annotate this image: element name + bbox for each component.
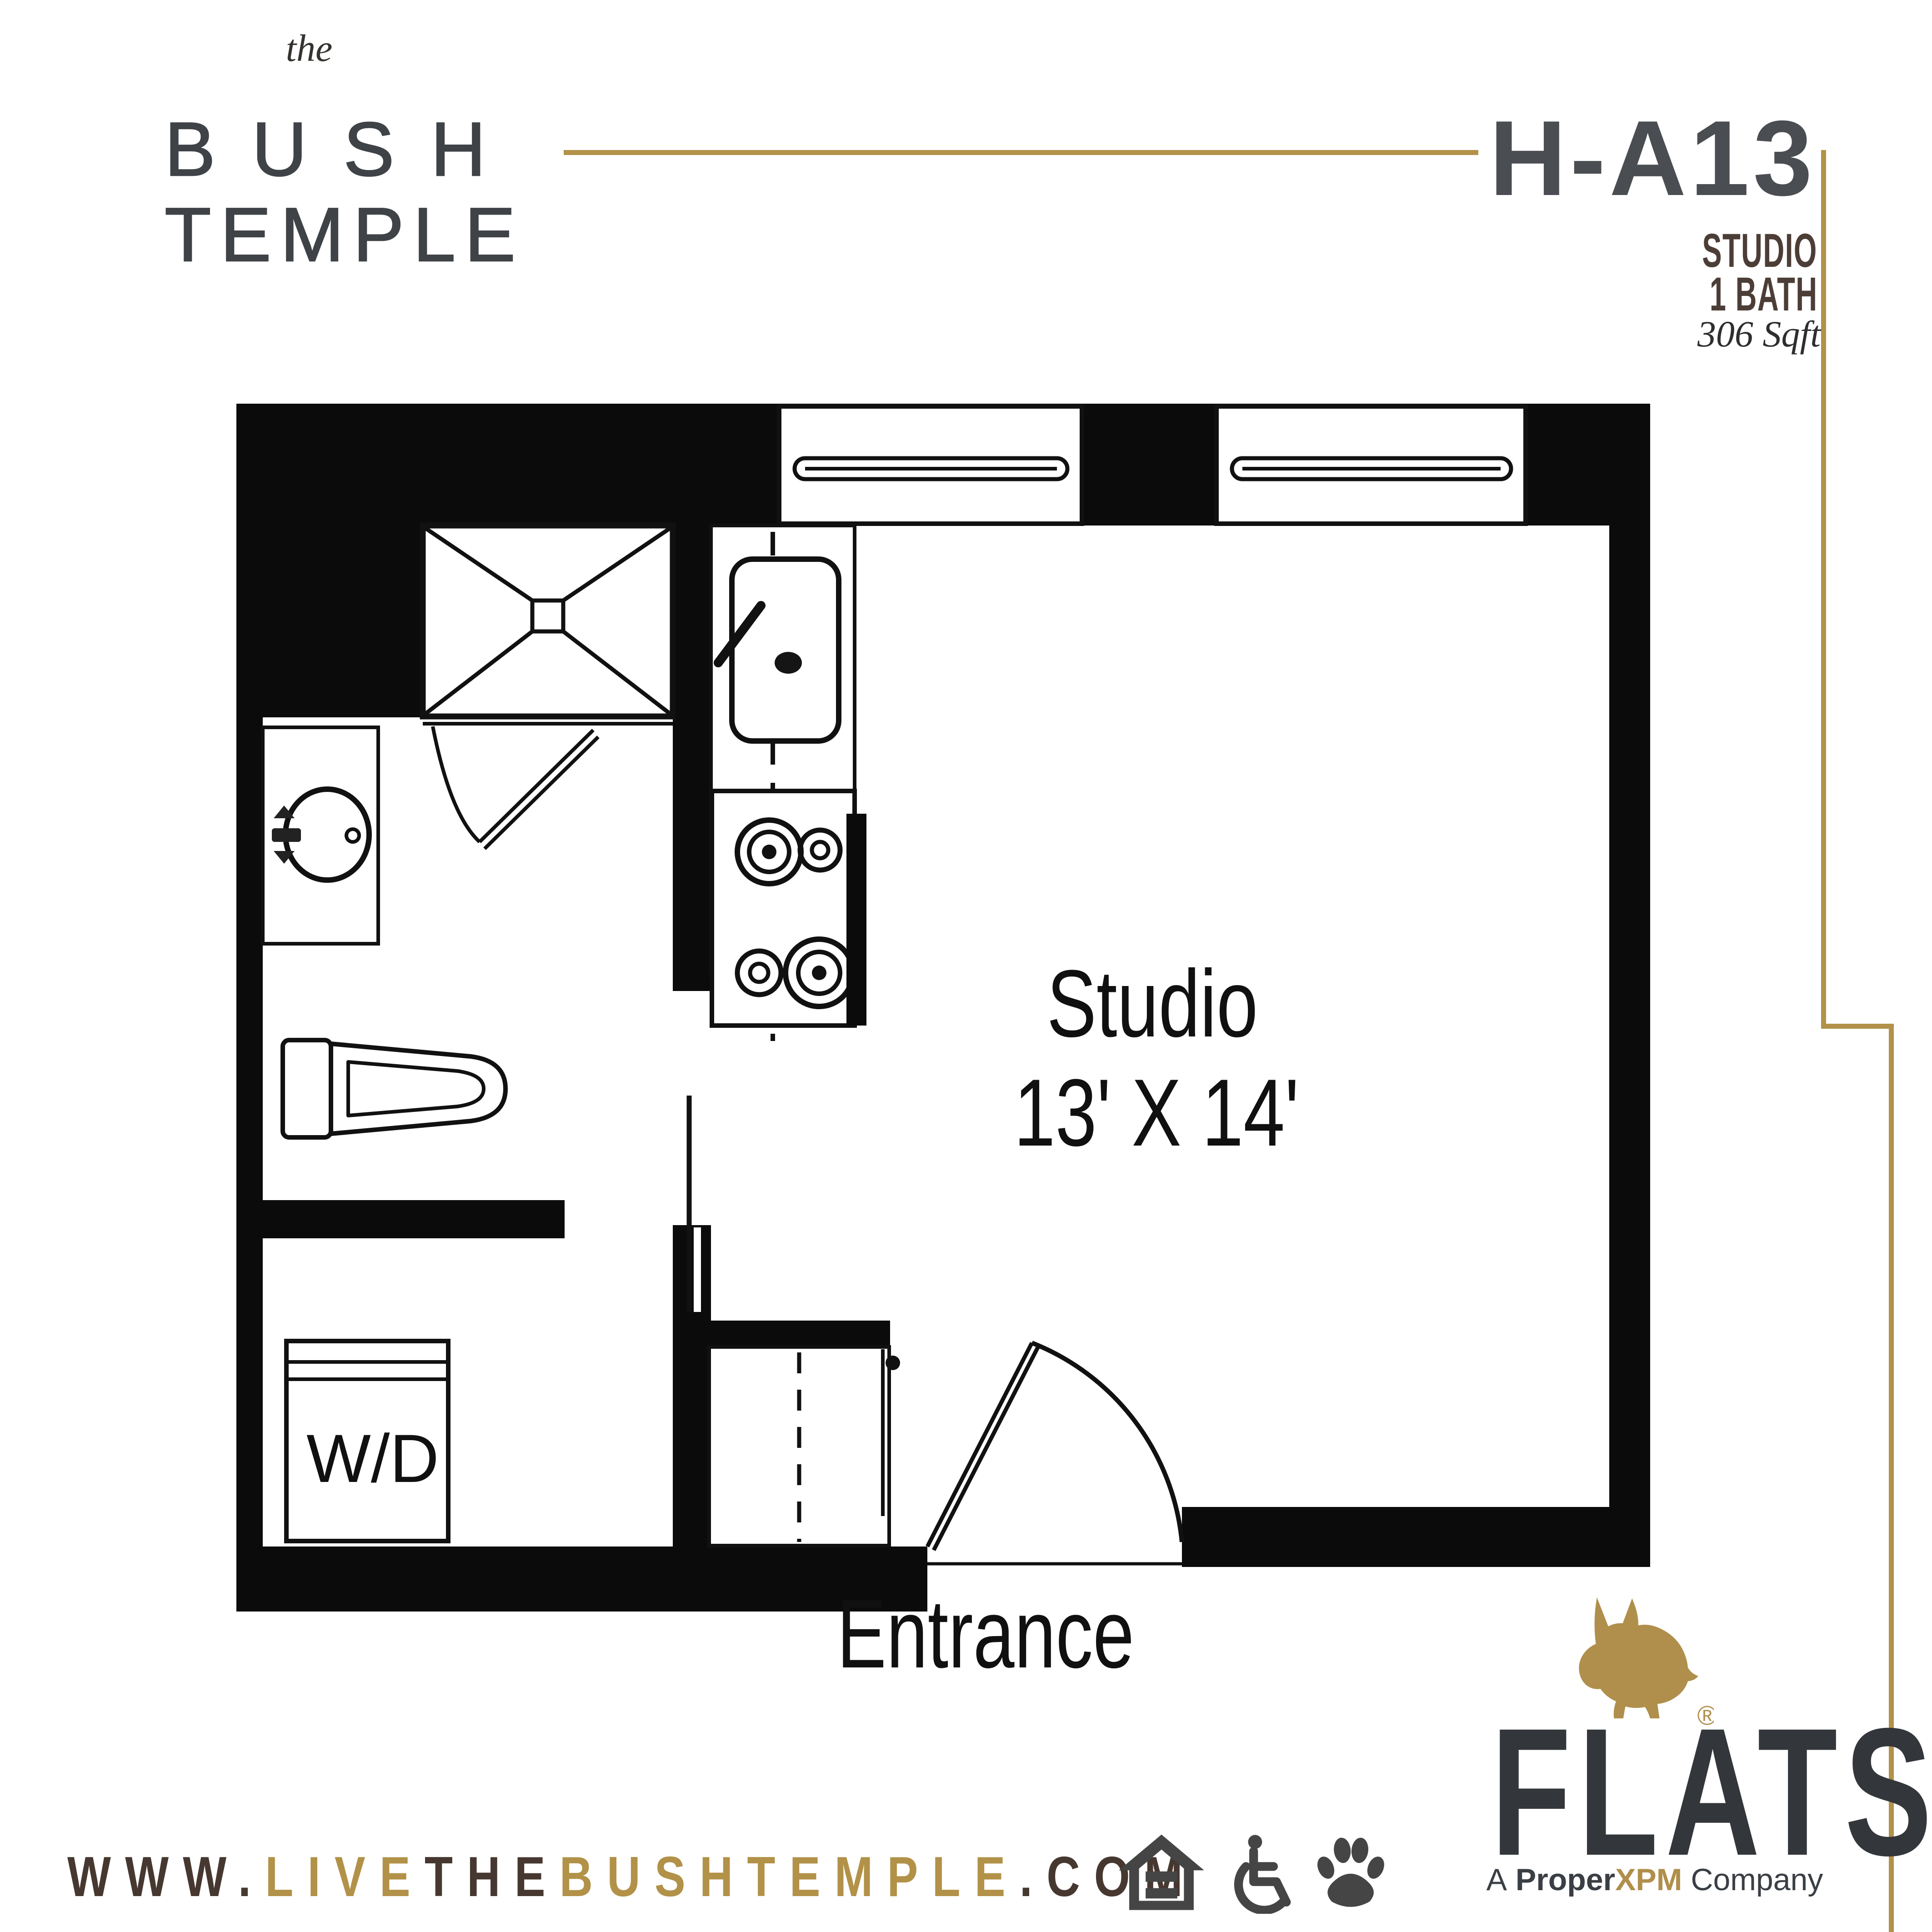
kitchen — [711, 526, 866, 1041]
wall-stove-notch — [846, 814, 866, 1026]
bath-faucet — [272, 828, 301, 842]
tagline-company: Company — [1682, 1862, 1823, 1897]
room-dims: 13' X 14' — [1014, 1059, 1299, 1166]
wall-left — [236, 404, 263, 1612]
toilet-tank — [283, 1040, 331, 1137]
wheelchair-icon — [1224, 1832, 1301, 1914]
tagline-xpm: XPM — [1615, 1862, 1682, 1897]
kitchen-drain — [775, 652, 802, 674]
website-url[interactable]: WWW.LIVETHEBUSHTEMPLE.COM — [67, 1845, 1197, 1909]
door-swing-arc — [1032, 1343, 1182, 1542]
entry-closet — [709, 1347, 900, 1546]
door-leaf — [927, 1343, 1032, 1547]
shower-drain — [532, 601, 563, 631]
wd-label: W/D — [306, 1420, 439, 1497]
wall-right — [1609, 404, 1650, 1567]
entrance-door — [927, 1343, 1182, 1564]
laundry: W/D — [286, 1341, 448, 1541]
shower-door-leaf — [480, 730, 593, 842]
kitchen-sink — [732, 559, 839, 741]
burner-top-left — [737, 820, 801, 884]
entrance-label: Entrance — [837, 1579, 1134, 1688]
wall-hall — [673, 1225, 711, 1547]
url-bushtemple: BUSHTEMPLE — [560, 1846, 1020, 1908]
url-live: LIVE — [265, 1846, 425, 1908]
bath-basin-knob — [346, 829, 359, 842]
room-label: Studio — [1047, 950, 1258, 1056]
closet-door-handle — [886, 1356, 900, 1370]
wall-topleft-mass — [236, 404, 423, 717]
url-the: THE — [425, 1846, 560, 1908]
tagline-a: A — [1487, 1862, 1516, 1897]
tagline-proper: Proper — [1516, 1862, 1615, 1897]
window-1 — [779, 406, 1082, 524]
shower-door-arc — [433, 726, 480, 842]
wall-closet-top — [709, 1321, 890, 1347]
url-www: WWW. — [67, 1846, 265, 1908]
wall-bottom-left — [236, 1547, 927, 1612]
toilet-bowl — [331, 1044, 506, 1134]
wall-bath-south — [236, 1200, 565, 1238]
window-2 — [1216, 406, 1526, 524]
flats-wordmark: FLATS — [1491, 1701, 1818, 1883]
paw-icon — [1313, 1836, 1388, 1908]
wall-bottom-right — [1182, 1507, 1650, 1567]
flats-tagline: A ProperXPM Company — [1427, 1862, 1882, 1897]
shower — [423, 526, 673, 849]
wall-kitchen-strip — [673, 404, 711, 991]
equal-housing-icon — [1118, 1831, 1205, 1913]
